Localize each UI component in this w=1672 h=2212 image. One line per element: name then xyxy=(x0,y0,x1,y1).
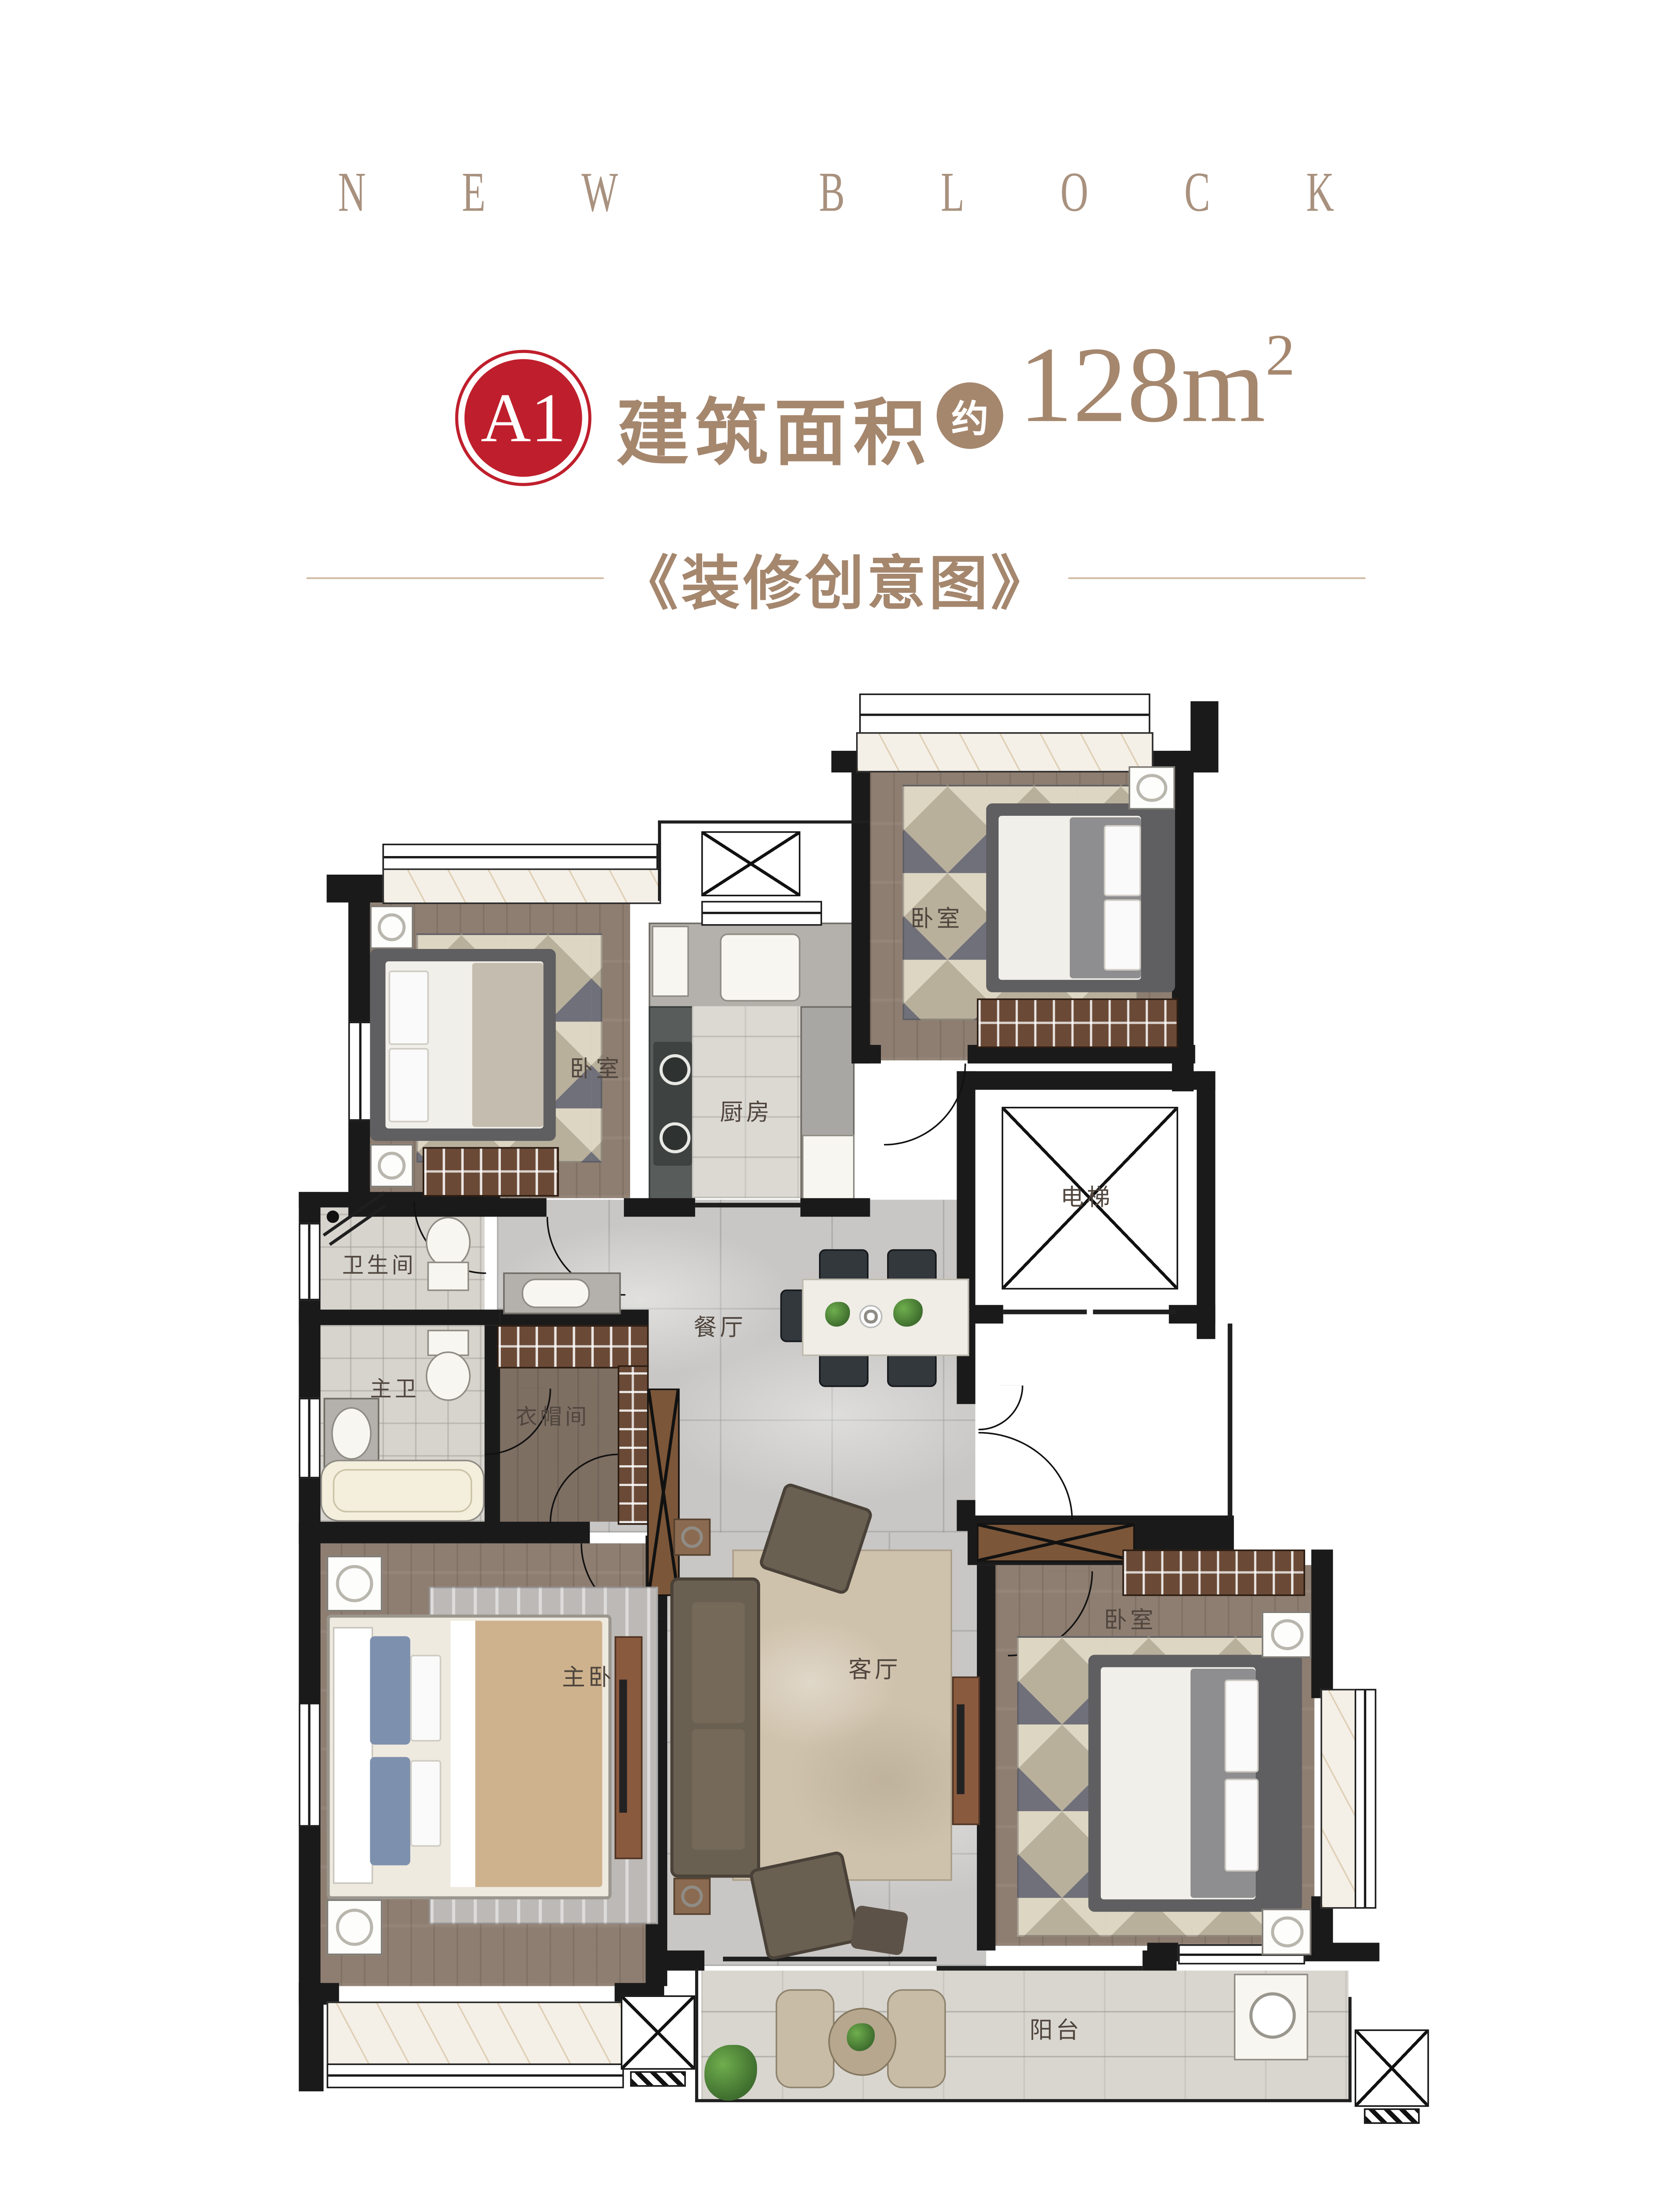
elevator-door xyxy=(1093,1310,1176,1314)
area-number: 128m xyxy=(1019,326,1265,445)
floorplan-page: NEW BLOCK A1 建筑面积 约 128m2 《装修创意图》 xyxy=(0,0,1672,2212)
subtitle-row: 《装修创意图》 xyxy=(0,536,1672,621)
pillow-blue xyxy=(370,1757,410,1865)
shoe-cabinet xyxy=(977,1523,1135,1562)
shower-head xyxy=(327,1210,339,1223)
master-bedroom-window xyxy=(299,1703,320,1827)
nightstand xyxy=(327,1556,382,1612)
balcony-outline xyxy=(695,1967,698,2102)
ac-platform-left xyxy=(621,1995,695,2070)
water-heater xyxy=(652,926,689,997)
unit-badge-label: A1 xyxy=(465,359,582,477)
wall xyxy=(299,1310,500,1325)
tv-console xyxy=(615,1636,642,1859)
wall xyxy=(299,1983,323,2091)
stove-burner-front xyxy=(660,1054,691,1085)
bay-window-top-left xyxy=(382,844,658,872)
bay-window-bedroom-right xyxy=(1355,1689,1376,1909)
bay-sill-master xyxy=(327,2001,624,2066)
wall xyxy=(1311,1550,1333,1698)
wall xyxy=(1142,1951,1176,1970)
wall xyxy=(1302,1943,1380,1961)
room-label-cloakroom: 衣帽间 xyxy=(515,1401,590,1432)
tv-console xyxy=(952,1677,980,1825)
hall-cabinet xyxy=(647,1389,680,1596)
unit-badge: A1 xyxy=(455,350,592,486)
room-label-bedroom-right: 卧室 xyxy=(1104,1603,1157,1635)
floorplan: 卧室 厨房 卧室 电梯 卫生间 餐厅 主卫 衣帽间 主卧 客厅 卧室 阳台 xyxy=(286,689,1413,2121)
living-rug xyxy=(732,1550,952,1881)
side-table xyxy=(673,1519,711,1556)
nightstand xyxy=(1129,766,1175,810)
room-label-bedroom-top-left: 卧室 xyxy=(570,1052,623,1084)
toilet-bowl xyxy=(426,1217,470,1267)
bay-window-master xyxy=(327,2063,624,2088)
dining-chair xyxy=(887,1352,937,1387)
bay-sill-top-right xyxy=(856,732,1153,772)
ac-hatch xyxy=(1364,2108,1420,2124)
wall xyxy=(852,1045,881,1064)
sheet xyxy=(450,1621,475,1887)
room-label-master-bedroom: 主卧 xyxy=(562,1660,615,1693)
bay-window-top-right xyxy=(859,694,1150,735)
lobby-outline xyxy=(1228,1324,1232,1519)
pillow xyxy=(1225,1680,1259,1773)
bay-sill-top-left xyxy=(382,868,661,904)
wall xyxy=(852,769,870,1064)
room-label-dining: 餐厅 xyxy=(694,1310,746,1343)
dining-chair xyxy=(819,1352,869,1387)
kitchen-sliding-door xyxy=(695,1203,800,1207)
nightstand xyxy=(1262,1612,1311,1658)
room-label-balcony: 阳台 xyxy=(1030,2013,1082,2046)
bay-sill-bedroom-right xyxy=(1321,1689,1358,1909)
master-bath-window xyxy=(299,1398,320,1479)
elevator-wall xyxy=(957,1071,1215,1090)
washer-drum xyxy=(1249,1992,1296,2039)
pillow xyxy=(410,1655,441,1742)
pillow xyxy=(388,1048,429,1122)
fridge xyxy=(802,1135,855,1201)
headboard xyxy=(333,1627,373,1884)
wall xyxy=(1191,701,1218,772)
approx-badge: 约 xyxy=(937,382,1003,449)
wardrobe xyxy=(423,1147,559,1197)
brand-wordmark-top: NEW BLOCK xyxy=(338,164,1430,227)
hall-sink xyxy=(522,1279,590,1308)
balcony-outline xyxy=(695,2099,1352,2102)
niche-line xyxy=(658,821,661,901)
subtitle-text: 《装修创意图》 xyxy=(619,536,1053,621)
pillow xyxy=(1225,1778,1259,1871)
nightstand xyxy=(370,906,413,949)
wardrobe xyxy=(1122,1550,1305,1596)
room-label-bedroom-top-right: 卧室 xyxy=(910,902,963,934)
bathtub-inner xyxy=(333,1469,472,1513)
bathroom-window xyxy=(299,1223,320,1300)
subtitle-line-left xyxy=(307,577,604,579)
sink xyxy=(331,1407,372,1460)
wall xyxy=(299,1522,590,1544)
tv xyxy=(619,1680,627,1813)
kitchen-window xyxy=(701,901,822,926)
pillow xyxy=(1104,825,1141,896)
pillow xyxy=(410,1760,441,1847)
lounge-chair xyxy=(776,1989,834,2088)
nightstand xyxy=(327,1899,382,1955)
balcony-sliding-door xyxy=(723,1957,937,1961)
pillow-blue xyxy=(370,1636,410,1745)
area-sup: 2 xyxy=(1265,323,1295,388)
room-label-bathroom: 卫生间 xyxy=(342,1249,416,1280)
side-table xyxy=(673,1878,711,1915)
nightstand xyxy=(370,1144,413,1187)
cloakroom-wardrobe-side xyxy=(618,1365,649,1525)
wall xyxy=(800,1198,870,1217)
ac-hatch xyxy=(630,2071,686,2087)
table-bowl xyxy=(859,1305,882,1328)
area-label: 建筑面积 xyxy=(616,373,932,480)
sofa-cushion xyxy=(692,1729,745,1850)
blanket xyxy=(472,963,543,1127)
armchair xyxy=(749,1850,862,1961)
bedroom-top-left-window xyxy=(348,1022,373,1121)
balcony-outline xyxy=(1349,1997,1352,2102)
pillow xyxy=(1104,899,1141,971)
wall xyxy=(624,1198,695,1217)
subtitle-line-right xyxy=(1068,577,1365,579)
toilet-tank xyxy=(427,1262,469,1291)
elevator-wall xyxy=(1197,1071,1215,1339)
stove-burner-back xyxy=(660,1122,691,1153)
elevator-door xyxy=(1003,1310,1087,1314)
sofa-cushion xyxy=(692,1602,745,1723)
niche-line xyxy=(658,821,870,824)
pillow xyxy=(388,971,429,1045)
ac-platform-kitchen xyxy=(701,831,800,896)
room-label-living: 客厅 xyxy=(848,1652,901,1685)
room-label-master-bath: 主卫 xyxy=(370,1373,419,1404)
ac-platform-right xyxy=(1355,2029,1429,2107)
tv xyxy=(957,1705,964,1794)
kitchen-sink xyxy=(720,933,800,1002)
room-label-elevator: 电梯 xyxy=(1061,1180,1113,1213)
area-value: 128m2 xyxy=(1019,333,1295,441)
toilet-bowl xyxy=(426,1352,470,1401)
balcony-sliding-door xyxy=(937,1966,1142,1970)
wardrobe xyxy=(977,998,1178,1048)
nightstand xyxy=(1262,1909,1311,1955)
room-label-kitchen: 厨房 xyxy=(720,1095,773,1128)
bedroom-top-right-door xyxy=(884,1064,966,1145)
cloakroom-wardrobe-top xyxy=(497,1325,649,1368)
pouf xyxy=(850,1905,909,1956)
